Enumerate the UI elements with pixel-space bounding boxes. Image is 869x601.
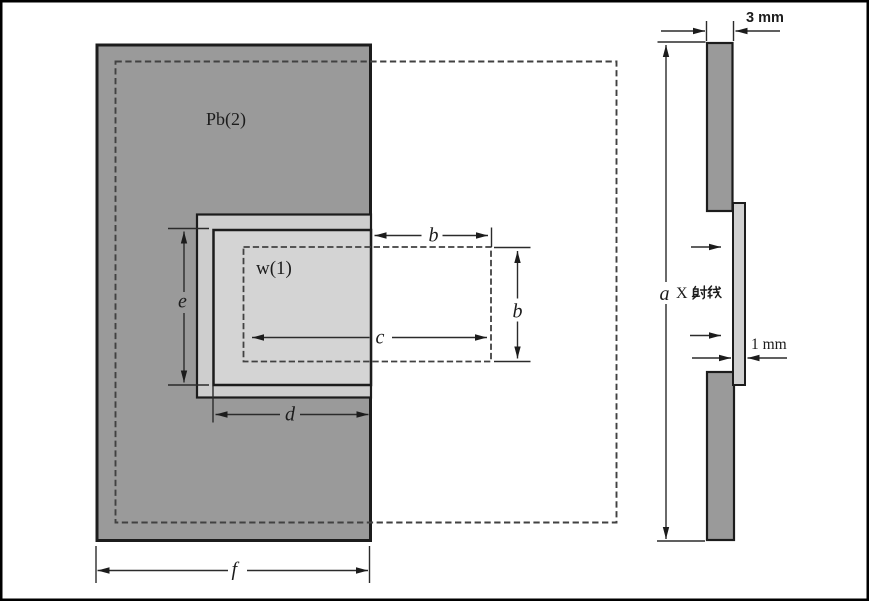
svg-text:X: X xyxy=(676,285,688,302)
svg-text:a: a xyxy=(660,283,670,305)
svg-text:w(1): w(1) xyxy=(256,258,292,279)
svg-text:Pb(2): Pb(2) xyxy=(206,109,246,130)
svg-text:1 mm: 1 mm xyxy=(751,336,787,353)
svg-text:e: e xyxy=(178,291,187,313)
svg-text:b: b xyxy=(429,225,439,247)
svg-text:b: b xyxy=(513,301,523,323)
svg-text:c: c xyxy=(376,327,385,349)
svg-text:d: d xyxy=(285,404,296,426)
svg-text:3 mm: 3 mm xyxy=(746,10,784,26)
